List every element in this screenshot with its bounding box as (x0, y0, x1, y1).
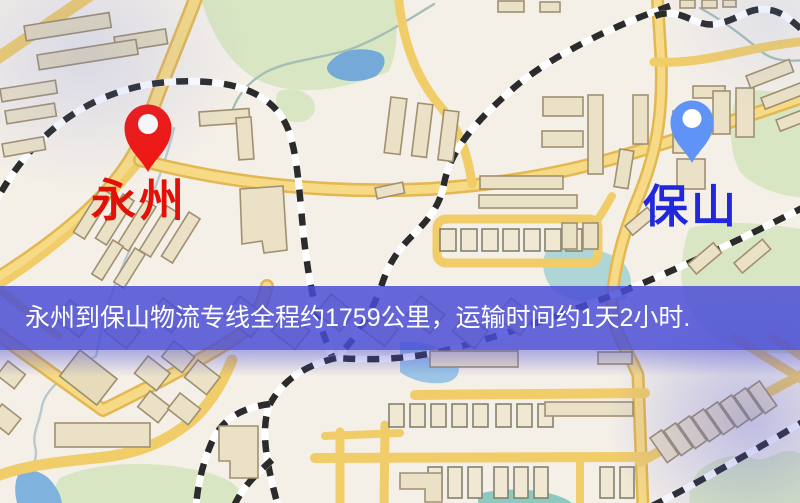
destination-city-label: 保山 (643, 184, 739, 229)
origin-city-label: 永州 (91, 178, 187, 223)
route-info-banner: 永州到保山物流专线全程约1759公里，运输时间约1天2小时. (0, 286, 800, 350)
route-info-text: 永州到保山物流专线全程约1759公里，运输时间约1天2小时. (0, 286, 800, 350)
red-pin-hole (138, 114, 158, 134)
lake-bottom-left (15, 470, 62, 503)
map-canvas (0, 0, 800, 503)
railway-top-right (655, 9, 800, 32)
banner-fade (0, 350, 800, 376)
blue-pin-hole (683, 109, 702, 128)
logistics-route-map: 永州到保山物流专线全程约1759公里，运输时间约1天2小时. 永州 保山 (0, 0, 800, 503)
